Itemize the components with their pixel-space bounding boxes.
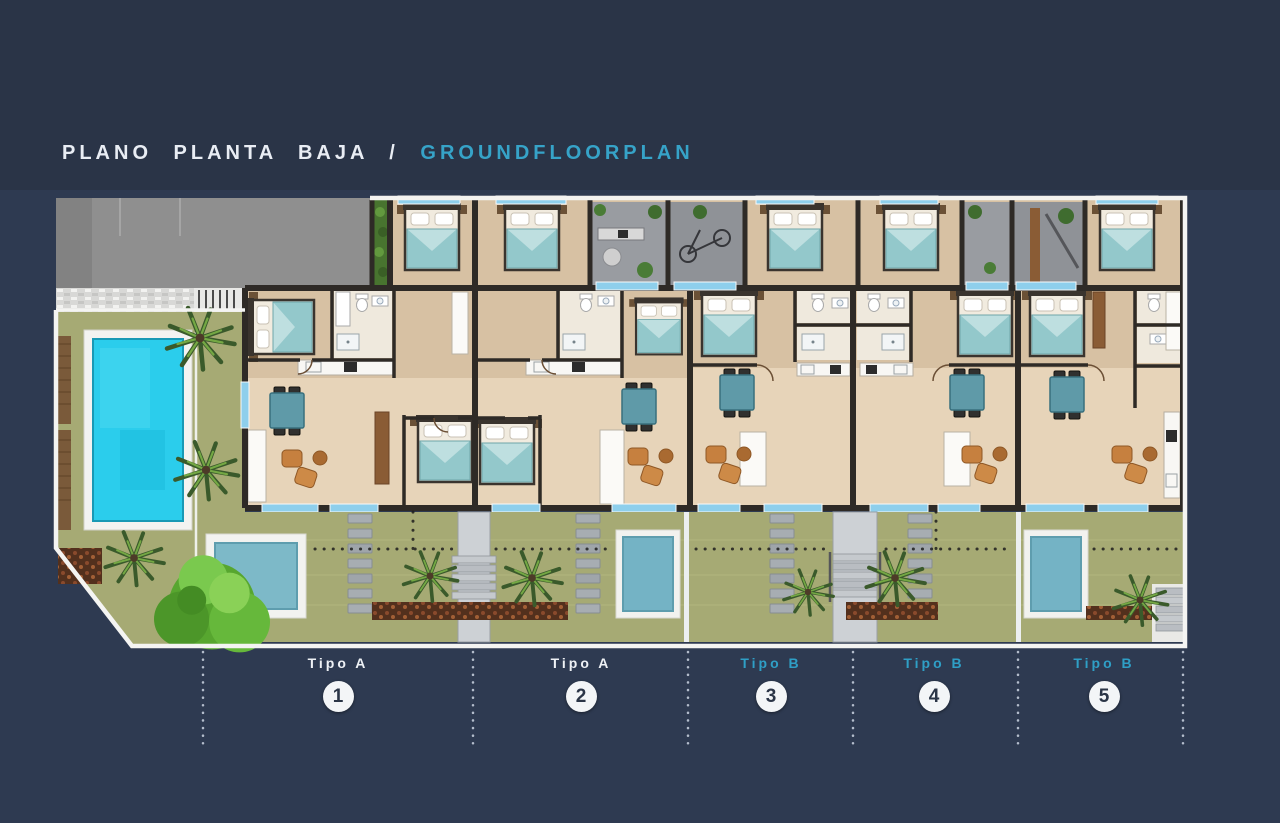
door-panel bbox=[1093, 292, 1105, 348]
mulch-bed bbox=[372, 602, 568, 620]
mulch-bed bbox=[846, 602, 938, 620]
communal-pool bbox=[84, 330, 192, 530]
unit-type-label: Tipo B bbox=[701, 655, 841, 671]
building bbox=[241, 196, 1183, 512]
unit-label-3: Tipo B 3 bbox=[701, 655, 841, 712]
rear-gardens bbox=[206, 512, 1186, 642]
garden-wall bbox=[684, 512, 689, 642]
unit-type-label: Tipo A bbox=[268, 655, 408, 671]
patio-plant bbox=[648, 205, 662, 219]
unit-number-badge: 2 bbox=[566, 681, 597, 712]
unit-type-label: Tipo B bbox=[1034, 655, 1174, 671]
plunge-pool-2 bbox=[616, 530, 680, 618]
unit-type-label: Tipo A bbox=[511, 655, 651, 671]
unit-label-1: Tipo A 1 bbox=[268, 655, 408, 712]
unit-number-badge: 5 bbox=[1089, 681, 1120, 712]
unit-number-badge: 1 bbox=[323, 681, 354, 712]
garden-wall bbox=[1016, 512, 1021, 642]
unit-number-badge: 4 bbox=[919, 681, 950, 712]
unit-label-5: Tipo B 5 bbox=[1034, 655, 1174, 712]
door-panel bbox=[375, 412, 389, 484]
patio-table bbox=[603, 248, 621, 266]
unit-label-4: Tipo B 4 bbox=[864, 655, 1004, 712]
floorplan-page: PLANO PLANTA BAJA / GROUNDFLOORPLAN bbox=[0, 0, 1280, 823]
stepping-stones bbox=[576, 514, 600, 613]
stepping-stones bbox=[348, 514, 372, 613]
unit-label-2: Tipo A 2 bbox=[511, 655, 651, 712]
patio-plank bbox=[1030, 208, 1040, 282]
unit-type-label: Tipo B bbox=[864, 655, 1004, 671]
plunge-pool-3 bbox=[1024, 530, 1088, 618]
unit-number-badge: 3 bbox=[756, 681, 787, 712]
